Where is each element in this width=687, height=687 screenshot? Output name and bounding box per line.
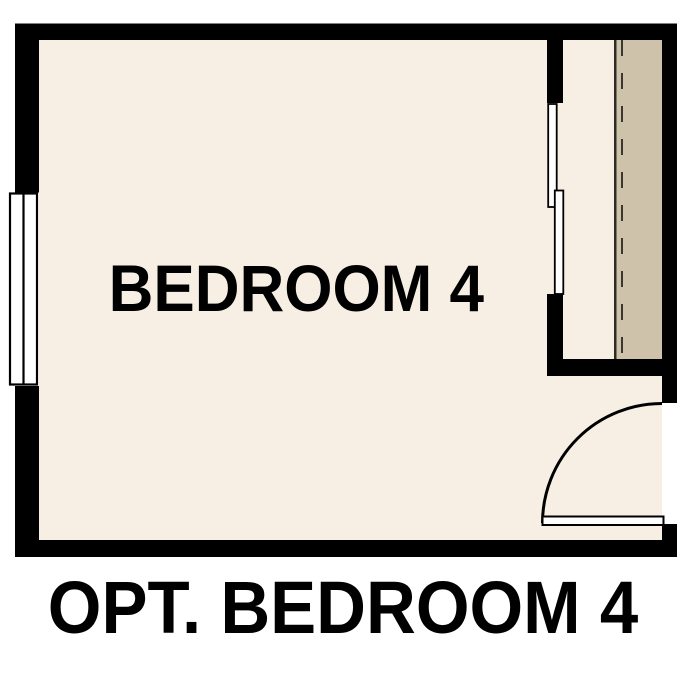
svg-text:BEDROOM 4: BEDROOM 4	[109, 251, 485, 325]
svg-text:OPT. BEDROOM 4: OPT. BEDROOM 4	[48, 567, 638, 650]
